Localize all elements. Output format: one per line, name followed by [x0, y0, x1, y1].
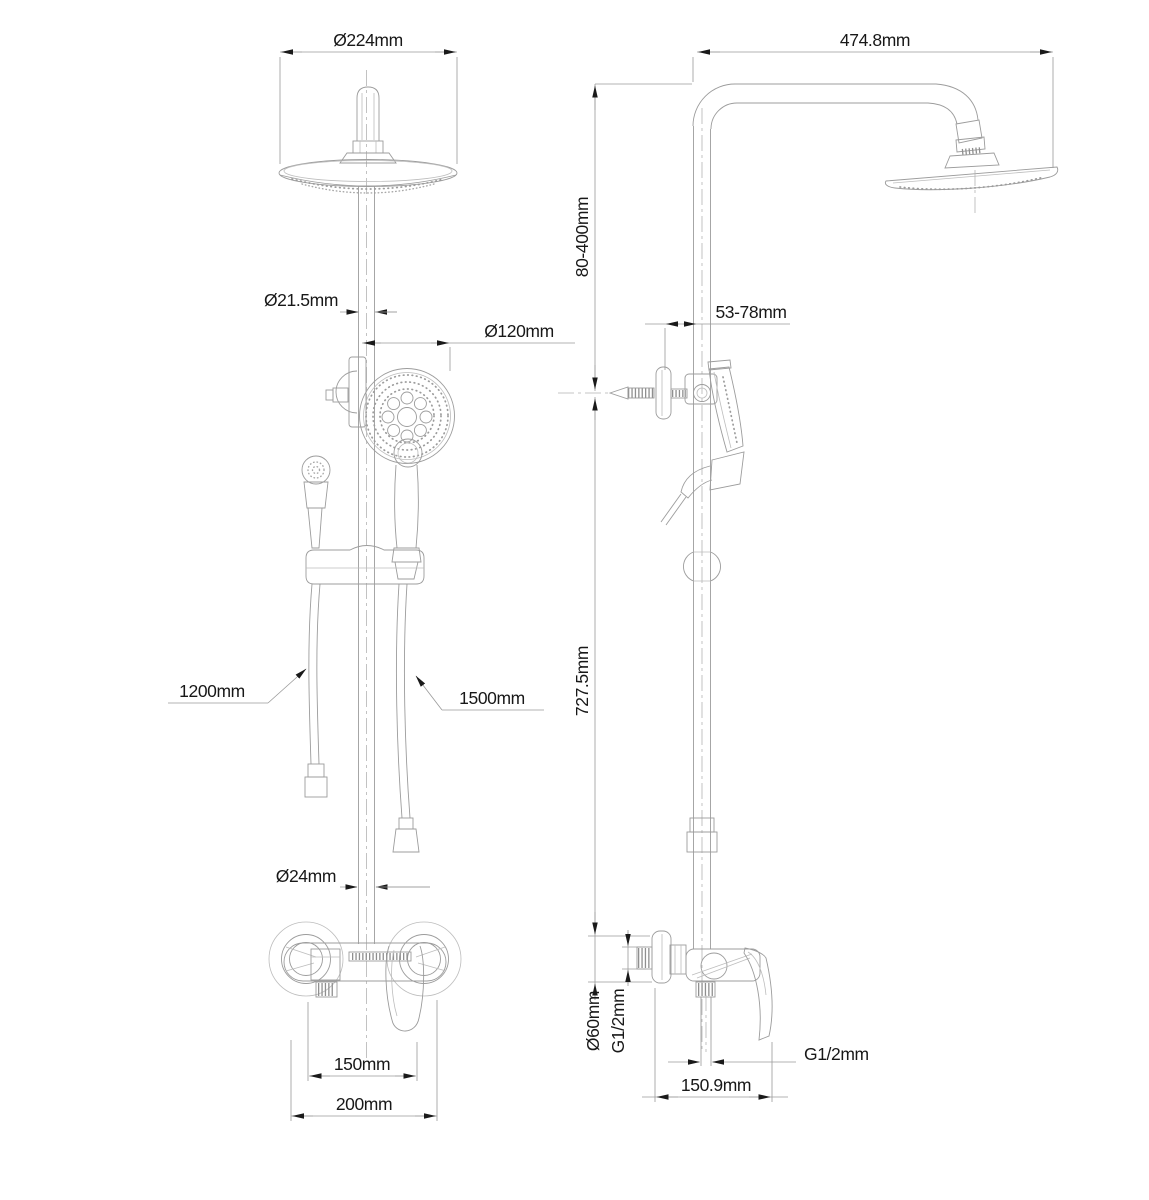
dim-shower-hose-length-label: 1500mm [459, 688, 525, 708]
front-view: Ø224mm Ø21.5mm [168, 30, 575, 1121]
dim-handshower-diameter: Ø120mm [362, 321, 575, 371]
dim-inlet-thread: G1/2mm [608, 930, 646, 1053]
mixer-valve-front [269, 922, 461, 1031]
dim-lower-riser-diameter: Ø24mm [276, 866, 430, 887]
shower-hoses [305, 584, 419, 852]
side-spray-dots [723, 377, 737, 443]
dim-riser-length: 727.5mm [572, 397, 595, 1000]
dim-riser-diameter: Ø21.5mm [264, 290, 397, 312]
dim-inlet-thread-label: G1/2mm [608, 989, 628, 1054]
wall-anchor-tip [610, 387, 628, 399]
dim-sprayer-hose-length: 1200mm [168, 669, 306, 703]
overhead-shower-head-front [279, 87, 457, 193]
dim-bracket-wall-offset: 53-78mm [645, 302, 790, 370]
nozzle-dots-row-side [900, 177, 1044, 189]
dim-arm-reach: 474.8mm [693, 30, 1053, 168]
dim-bracket-wall-offset-label: 53-78mm [715, 302, 786, 322]
hose-holder-bracket [306, 546, 424, 585]
dim-inlet-center-distance-label: 150mm [334, 1054, 390, 1074]
dim-arm-reach-label: 474.8mm [840, 30, 910, 50]
dim-outlet-thread-label: G1/2mm [804, 1044, 869, 1064]
spray-dots-ring [380, 389, 434, 443]
dim-handshower-diameter-label: Ø120mm [484, 321, 554, 341]
shower-drawing-canvas: Ø224mm Ø21.5mm [0, 0, 1149, 1200]
dim-riser-length-label: 727.5mm [572, 646, 592, 716]
dim-mixer-depth: 150.9mm [642, 988, 788, 1102]
shower-arm-side [693, 84, 1058, 213]
dim-escutcheon-diameter-label: Ø60mm [583, 991, 603, 1051]
dim-mixer-depth-label: 150.9mm [681, 1075, 751, 1095]
sprayer-dots [308, 462, 324, 478]
hook-holder-side [661, 452, 744, 525]
dim-bracket-height-range-label: 80-400mm [572, 197, 592, 277]
dim-sprayer-hose-length-label: 1200mm [179, 681, 245, 701]
dim-inlet-center-distance: 150mm [308, 1002, 417, 1081]
dim-mixer-overall-width-label: 200mm [336, 1094, 392, 1114]
spray-dots-ring [366, 375, 448, 457]
dim-bracket-height-range: 80-400mm [572, 84, 692, 391]
side-view: 474.8mm 80-400mm [558, 30, 1058, 1102]
sprayer-dots [313, 467, 320, 474]
dim-overhead-diameter: Ø224mm [280, 30, 457, 164]
hand-shower-front [326, 357, 455, 579]
bidet-sprayer-front [302, 456, 330, 548]
dim-riser-diameter-label: Ø21.5mm [264, 290, 338, 310]
dim-overhead-diameter-label: Ø224mm [333, 30, 403, 50]
technical-drawing-page: Ø224mm Ø21.5mm [0, 0, 1149, 1200]
mixer-valve-side [637, 931, 772, 1052]
dim-lower-riser-diameter-label: Ø24mm [276, 866, 336, 886]
dim-shower-hose-length: 1500mm [416, 676, 544, 710]
dim-outlet-thread: G1/2mm [668, 1040, 869, 1066]
